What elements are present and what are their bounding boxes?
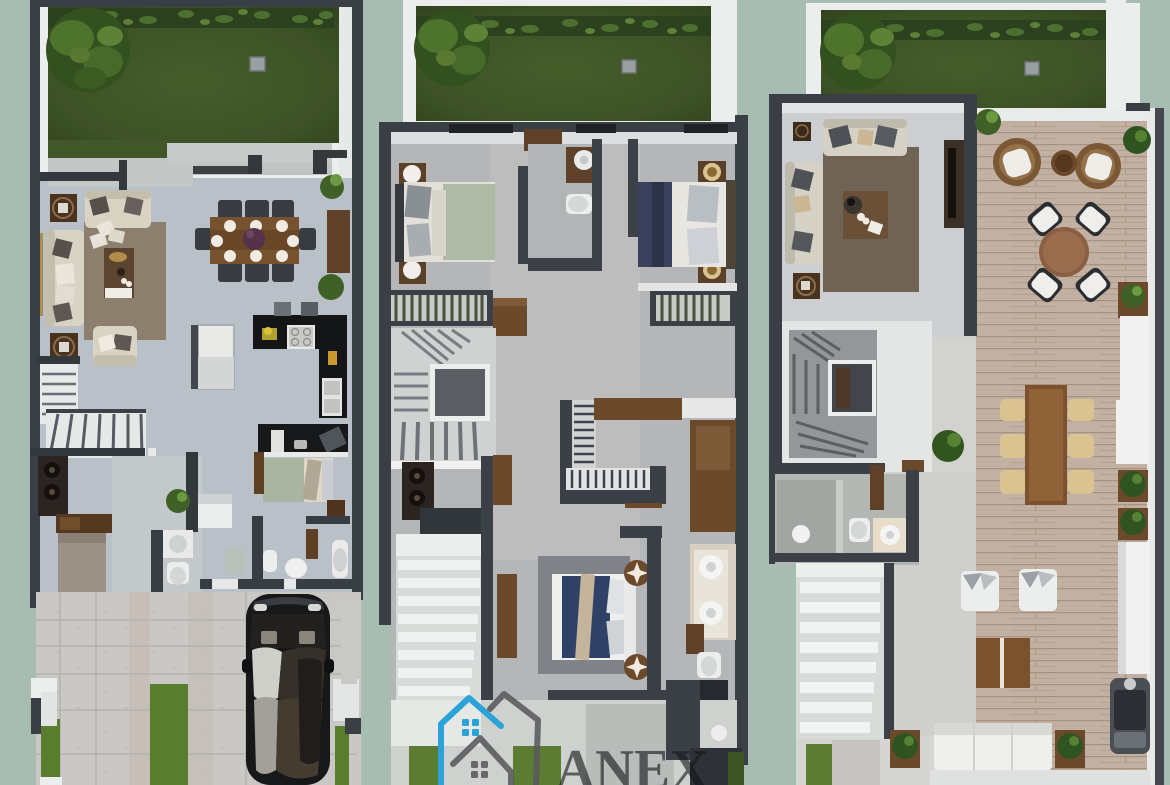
svg-text:ANEX: ANEX (556, 739, 709, 785)
